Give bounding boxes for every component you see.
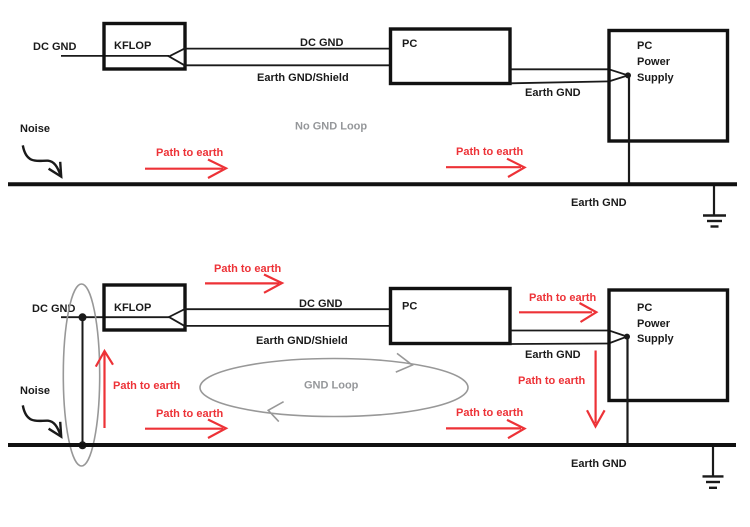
svg-text:Earth GND: Earth GND <box>571 458 627 470</box>
svg-text:Noise: Noise <box>20 123 50 135</box>
svg-text:Supply: Supply <box>637 333 675 345</box>
svg-text:Earth GND/Shield: Earth GND/Shield <box>256 335 348 347</box>
svg-text:KFLOP: KFLOP <box>114 302 151 314</box>
svg-text:DC GND: DC GND <box>300 37 343 49</box>
svg-text:DC GND: DC GND <box>33 41 76 53</box>
svg-text:PC: PC <box>402 38 417 50</box>
svg-text:PC: PC <box>402 301 417 313</box>
svg-text:DC GND: DC GND <box>299 298 342 310</box>
svg-text:Noise: Noise <box>20 385 50 397</box>
svg-text:Earth GND: Earth GND <box>525 87 581 99</box>
svg-text:KFLOP: KFLOP <box>114 40 151 52</box>
svg-text:Path to earth: Path to earth <box>456 146 524 158</box>
svg-text:Path to earth: Path to earth <box>518 375 586 387</box>
svg-text:No GND Loop: No GND Loop <box>295 121 367 133</box>
svg-text:Earth GND: Earth GND <box>525 349 581 361</box>
svg-text:Power: Power <box>637 56 671 68</box>
svg-text:Path to earth: Path to earth <box>156 147 224 159</box>
svg-text:Path to earth: Path to earth <box>529 292 597 304</box>
svg-text:Path to earth: Path to earth <box>214 263 282 275</box>
svg-text:PC: PC <box>637 302 652 314</box>
svg-text:PC: PC <box>637 40 652 52</box>
svg-text:Path to earth: Path to earth <box>113 380 181 392</box>
svg-text:Earth GND: Earth GND <box>571 197 627 209</box>
svg-text:Path to earth: Path to earth <box>456 407 524 419</box>
svg-text:Path to earth: Path to earth <box>156 408 224 420</box>
svg-text:Earth GND/Shield: Earth GND/Shield <box>257 72 349 84</box>
svg-text:GND Loop: GND Loop <box>304 380 359 392</box>
svg-text:Supply: Supply <box>637 72 675 84</box>
svg-text:Power: Power <box>637 318 671 330</box>
